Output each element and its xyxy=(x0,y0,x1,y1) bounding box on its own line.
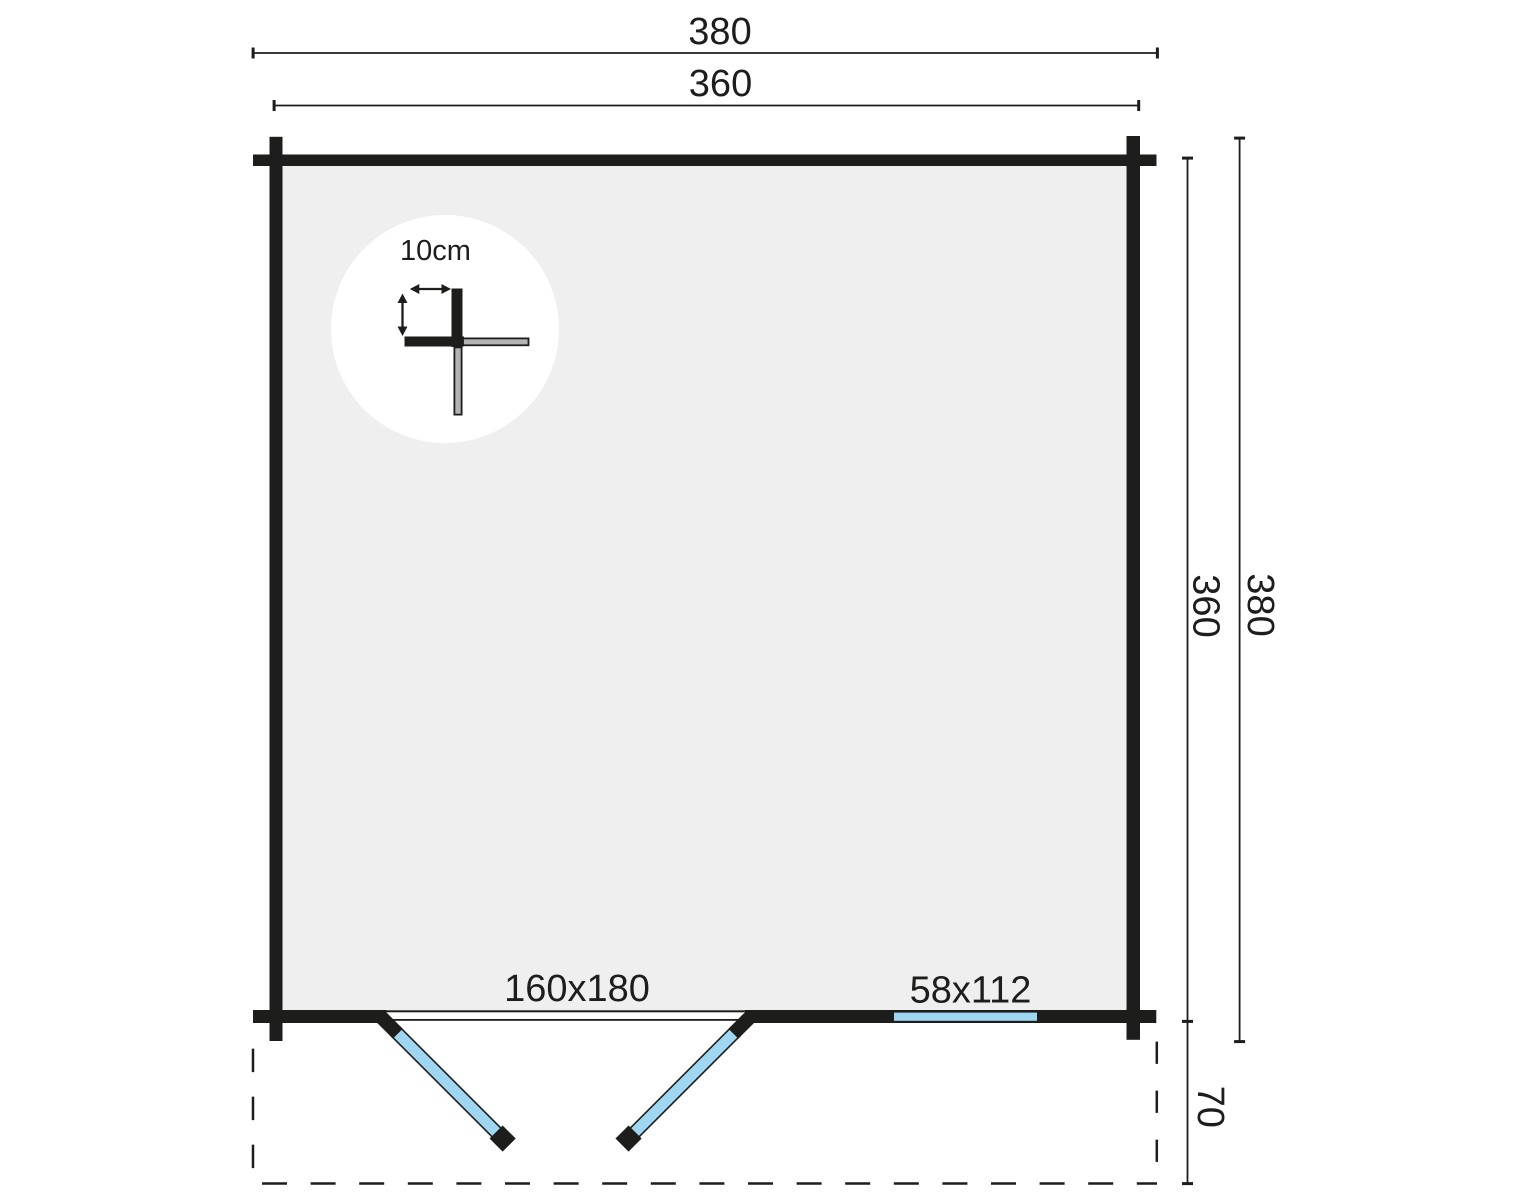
svg-text:360: 360 xyxy=(1185,574,1227,637)
svg-text:160x180: 160x180 xyxy=(504,968,650,1010)
svg-text:360: 360 xyxy=(689,63,752,105)
svg-text:10cm: 10cm xyxy=(400,235,471,267)
svg-text:58x112: 58x112 xyxy=(910,970,1032,1012)
svg-text:70: 70 xyxy=(1189,1086,1231,1128)
svg-text:380: 380 xyxy=(688,11,751,53)
svg-text:380: 380 xyxy=(1239,573,1281,636)
